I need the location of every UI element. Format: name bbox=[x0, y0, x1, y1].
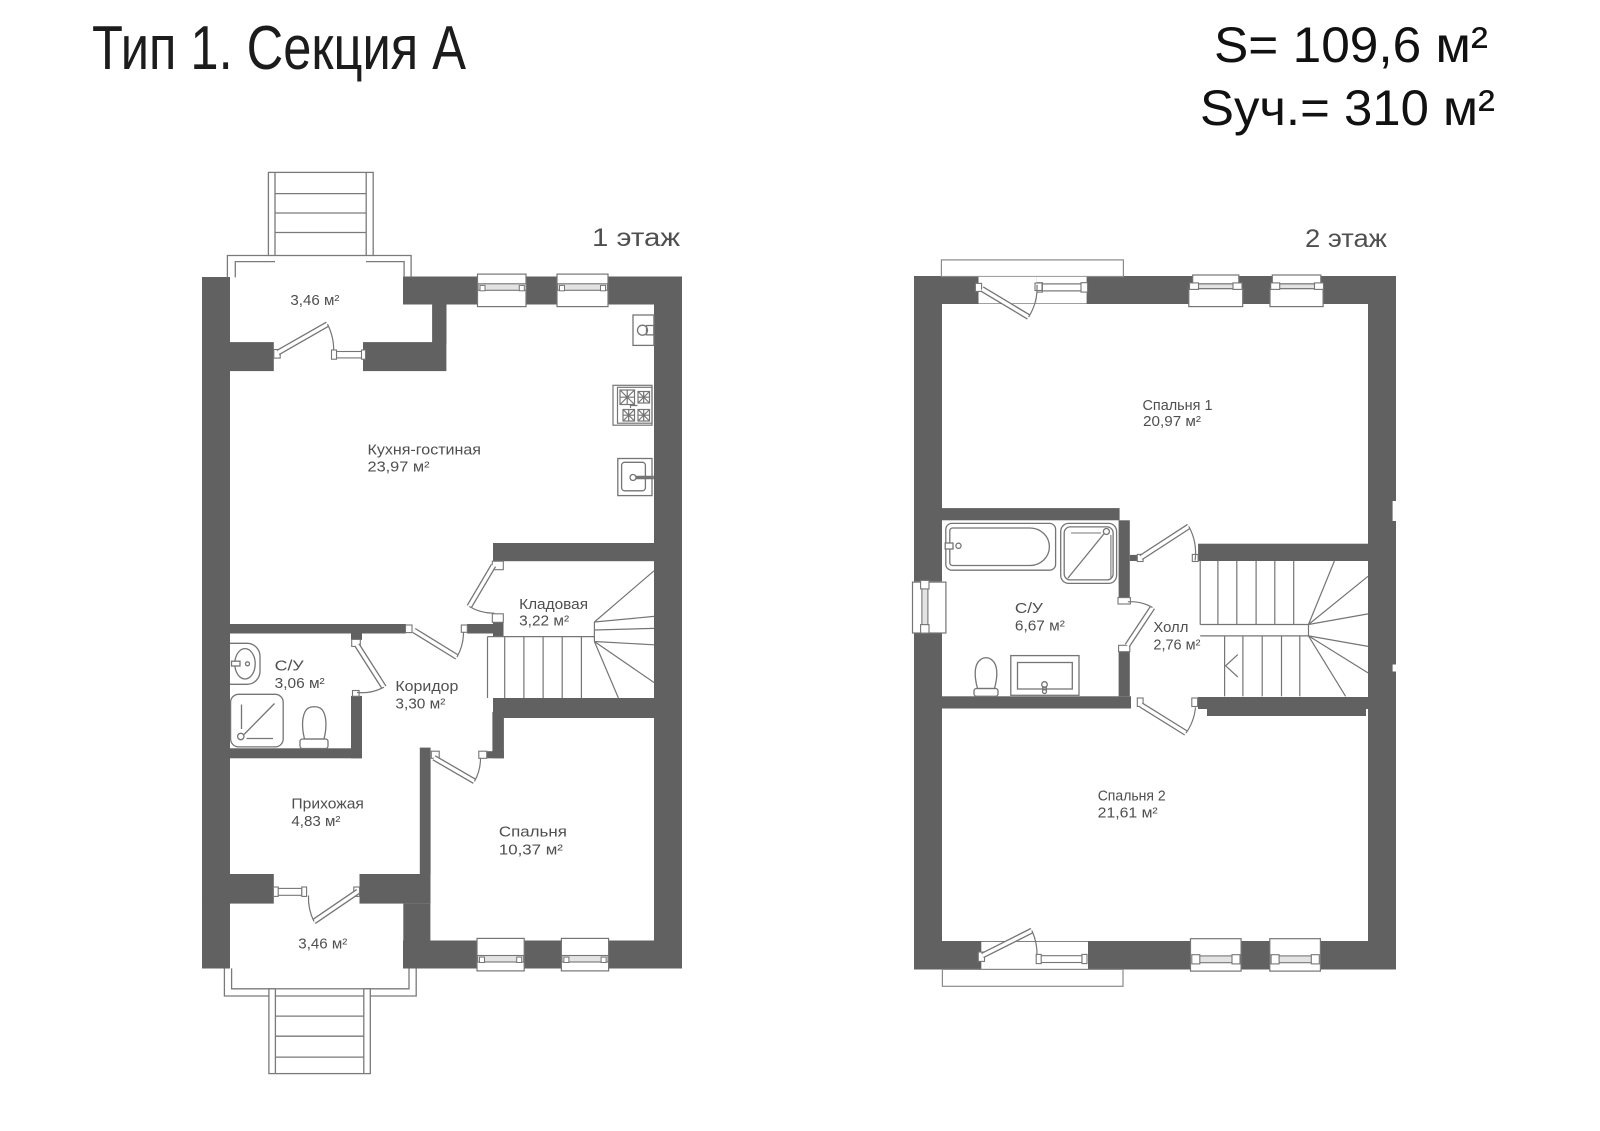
svg-text:Прихожая: Прихожая bbox=[291, 797, 364, 813]
svg-text:23,97 м²: 23,97 м² bbox=[368, 460, 430, 476]
svg-text:2 этаж: 2 этаж bbox=[1305, 225, 1387, 253]
svg-text:Sуч.= 310 м²: Sуч.= 310 м² bbox=[1200, 80, 1495, 136]
svg-text:20,97 м²: 20,97 м² bbox=[1143, 414, 1201, 430]
svg-text:3,22 м²: 3,22 м² bbox=[519, 614, 569, 630]
svg-text:21,61 м²: 21,61 м² bbox=[1098, 805, 1158, 821]
svg-text:3,30 м²: 3,30 м² bbox=[395, 697, 445, 713]
svg-text:2,76 м²: 2,76 м² bbox=[1153, 637, 1200, 653]
svg-text:Спальня: Спальня bbox=[499, 825, 567, 841]
svg-text:S= 109,6 м²: S= 109,6 м² bbox=[1214, 17, 1488, 73]
svg-text:1 этаж: 1 этаж bbox=[592, 224, 680, 252]
svg-text:Спальня 2: Спальня 2 bbox=[1098, 789, 1166, 805]
svg-text:Коридор: Коридор bbox=[395, 679, 458, 695]
svg-text:Спальня 1: Спальня 1 bbox=[1143, 398, 1213, 414]
svg-text:Холл: Холл bbox=[1153, 620, 1188, 636]
svg-text:3,46 м²: 3,46 м² bbox=[298, 937, 347, 953]
svg-text:3,46 м²: 3,46 м² bbox=[290, 293, 339, 309]
svg-text:Тип 1. Секция А: Тип 1. Секция А bbox=[92, 14, 467, 83]
svg-text:3,06 м²: 3,06 м² bbox=[275, 676, 325, 692]
svg-text:4,83 м²: 4,83 м² bbox=[291, 814, 340, 830]
svg-text:С/У: С/У bbox=[1015, 601, 1044, 617]
svg-text:Кухня-гостиная: Кухня-гостиная bbox=[368, 443, 482, 459]
svg-text:С/У: С/У bbox=[275, 659, 305, 675]
svg-text:Кладовая: Кладовая bbox=[519, 597, 588, 613]
svg-text:10,37 м²: 10,37 м² bbox=[499, 842, 563, 858]
svg-text:6,67 м²: 6,67 м² bbox=[1015, 619, 1065, 635]
